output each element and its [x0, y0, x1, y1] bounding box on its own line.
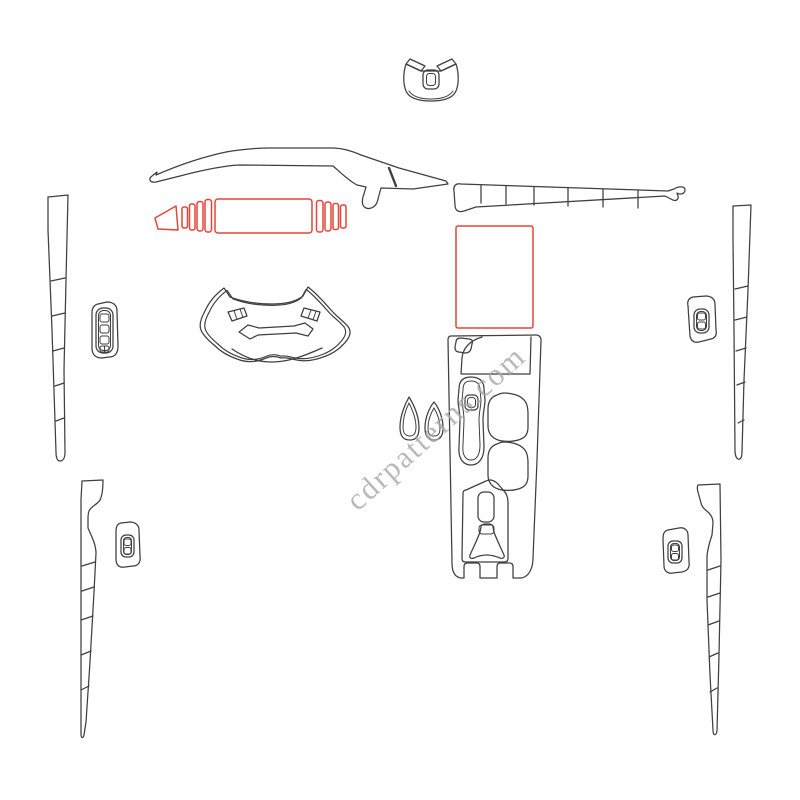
mirror-mount-pattern	[404, 59, 459, 101]
instrument-cluster-hood-pattern	[200, 287, 350, 362]
right-wing-flap	[437, 59, 456, 71]
front-right-pillar-trim-pattern	[733, 205, 751, 459]
passenger-dash-trim-pattern	[454, 184, 685, 212]
rear-right-sill-trim-pattern	[697, 484, 721, 735]
front-left-window-switch-pattern	[92, 302, 118, 358]
ppf-pattern-sheet: cdrpatterns.com	[0, 0, 800, 800]
left-wing-flap	[406, 59, 425, 71]
left-vent-cutout	[228, 308, 247, 321]
rear-left-sill-trim-pattern	[81, 480, 103, 738]
car-interior-pattern-diagram: cdrpatterns.com	[0, 0, 800, 800]
boot-flare	[470, 524, 504, 558]
dash-strip-pattern-highlighted	[155, 199, 346, 233]
main-segment	[215, 199, 312, 233]
rear-left-window-switch-pattern	[116, 522, 140, 567]
screen-pattern-highlighted	[456, 226, 533, 328]
wedge-segment	[155, 206, 178, 230]
seam-line	[389, 168, 396, 186]
center-visor-band	[239, 323, 313, 339]
slot-cutout	[478, 492, 494, 522]
front-right-window-switch-pattern	[688, 296, 717, 342]
rear-right-window-switch-pattern	[663, 528, 689, 573]
cup-holder-cutout	[488, 393, 528, 441]
sensor-cutout	[423, 70, 439, 89]
front-left-pillar-trim-pattern	[48, 195, 68, 461]
